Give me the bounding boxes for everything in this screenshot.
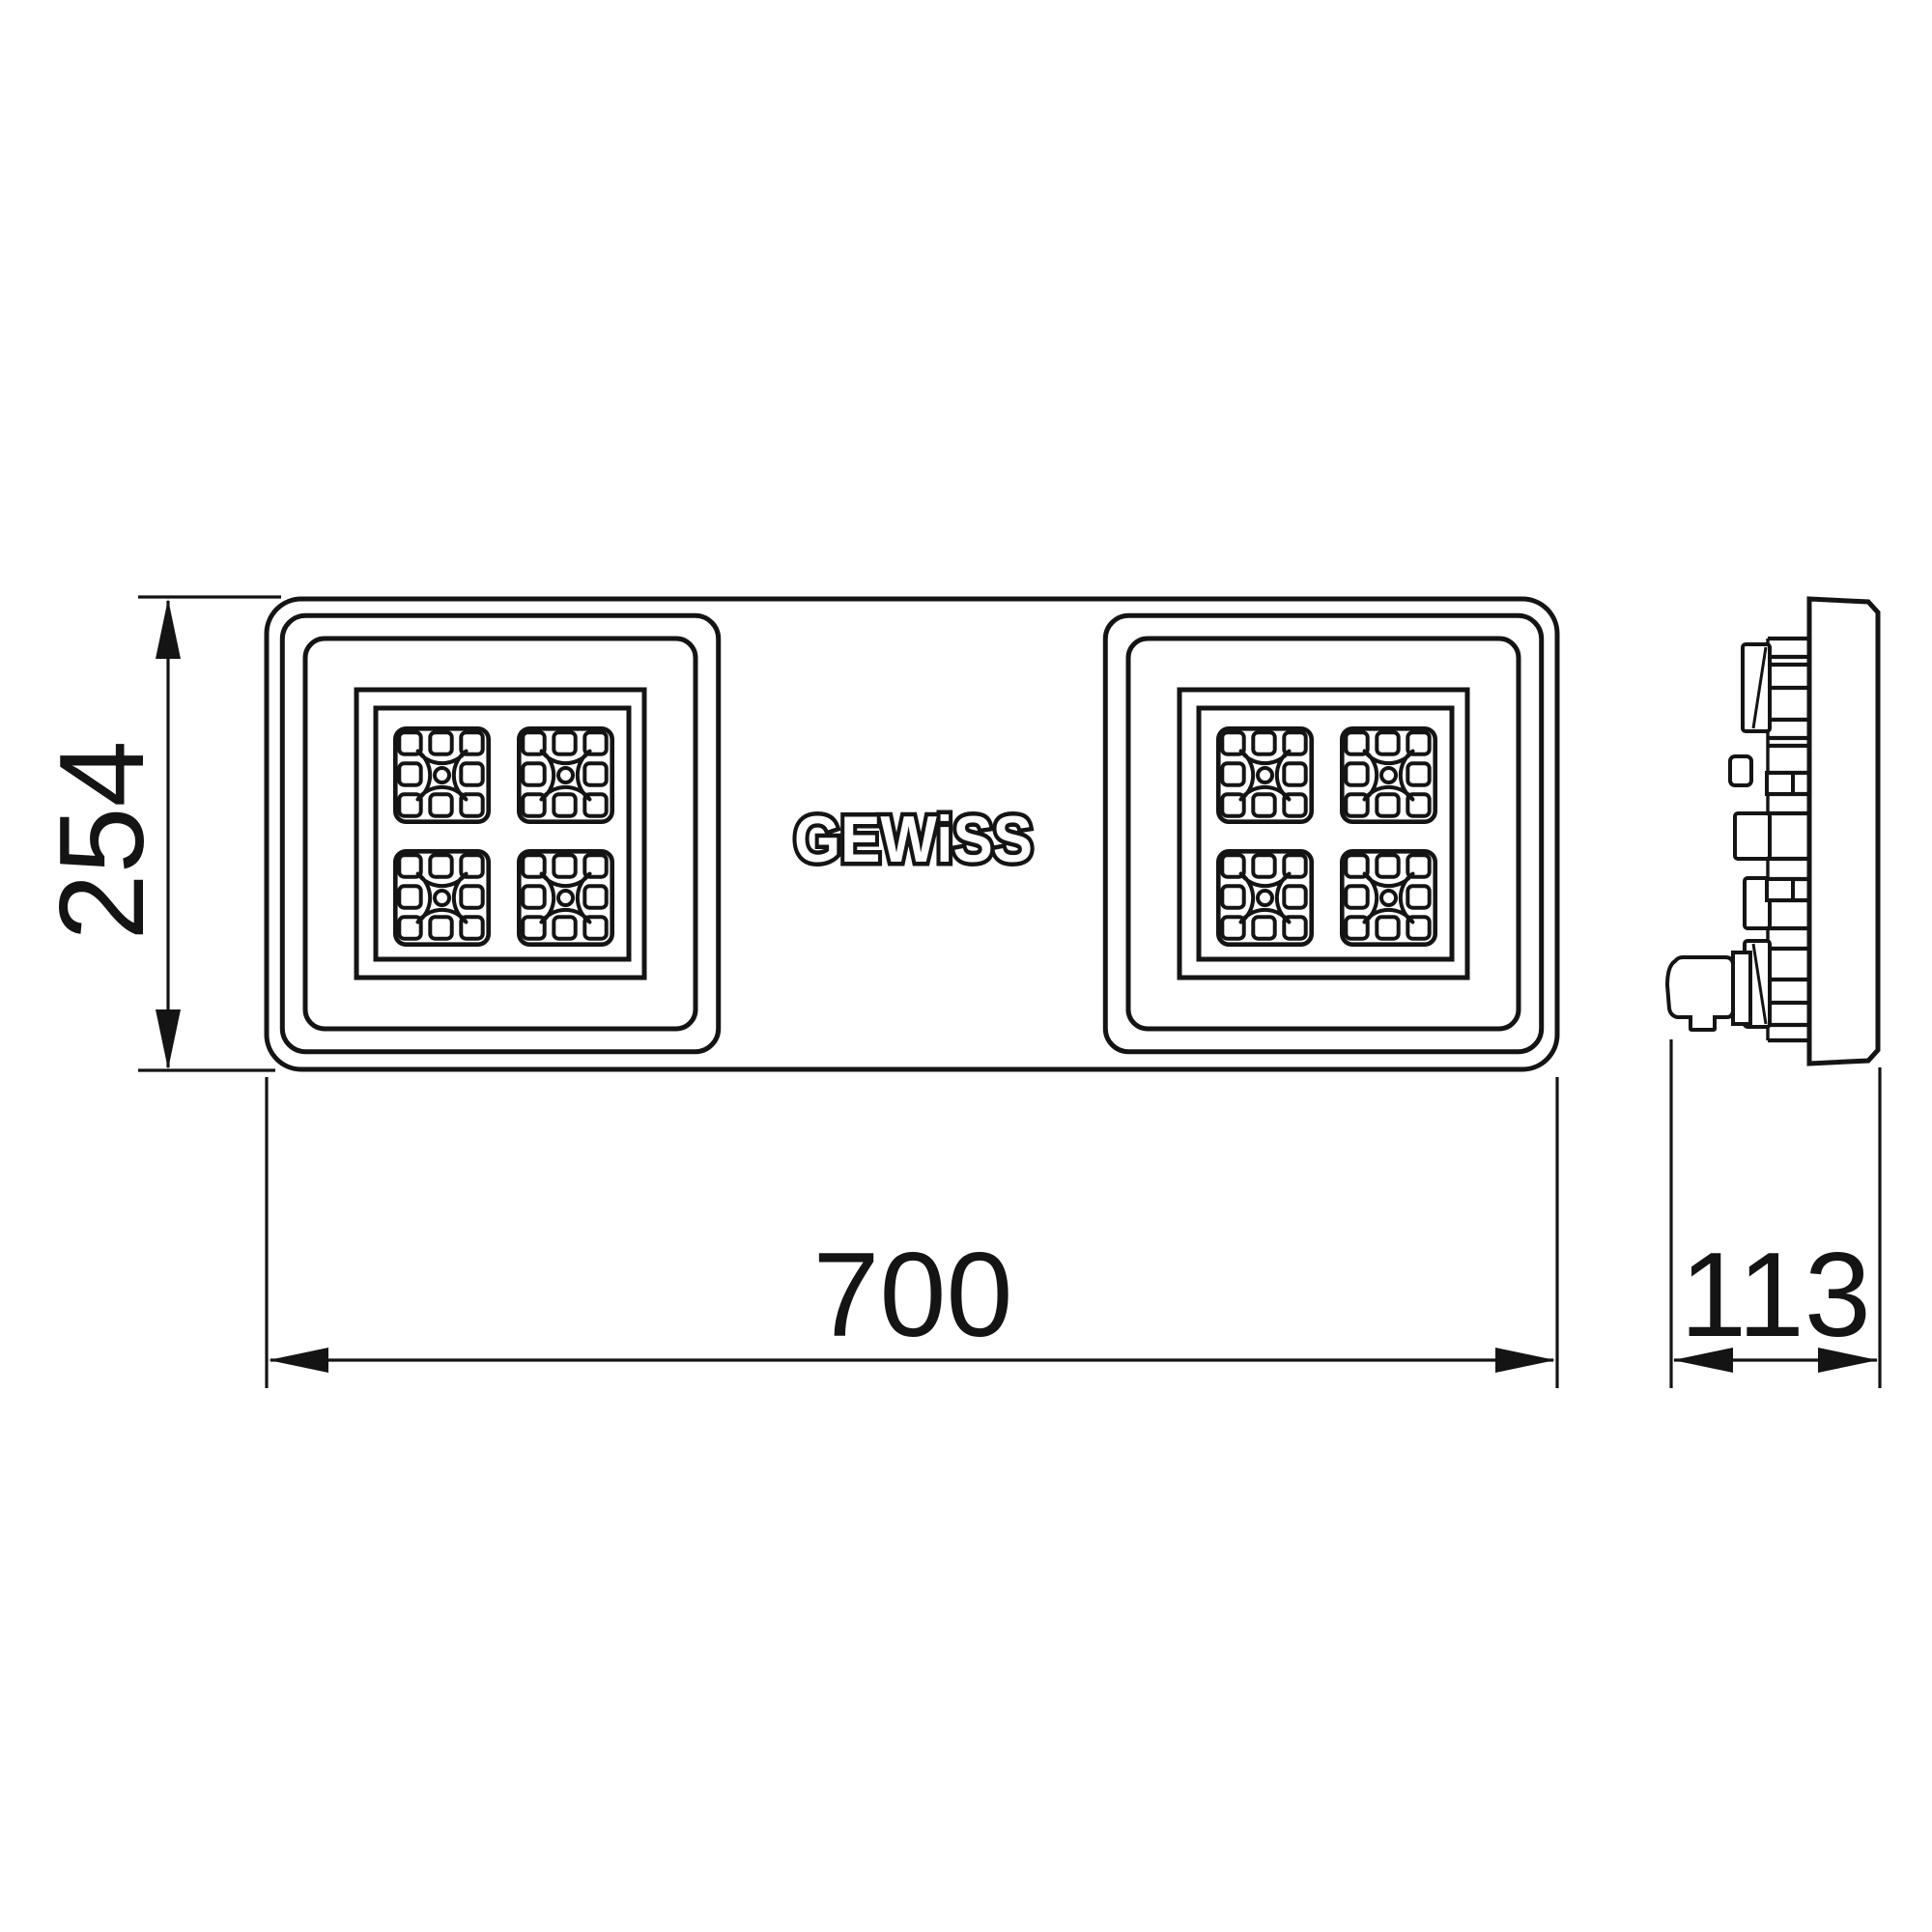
svg-text:700: 700 [813,1229,1013,1362]
svg-text:GEWiSS: GEWiSS [794,802,1033,875]
svg-text:254: 254 [36,741,169,941]
svg-text:113: 113 [1680,1229,1871,1362]
